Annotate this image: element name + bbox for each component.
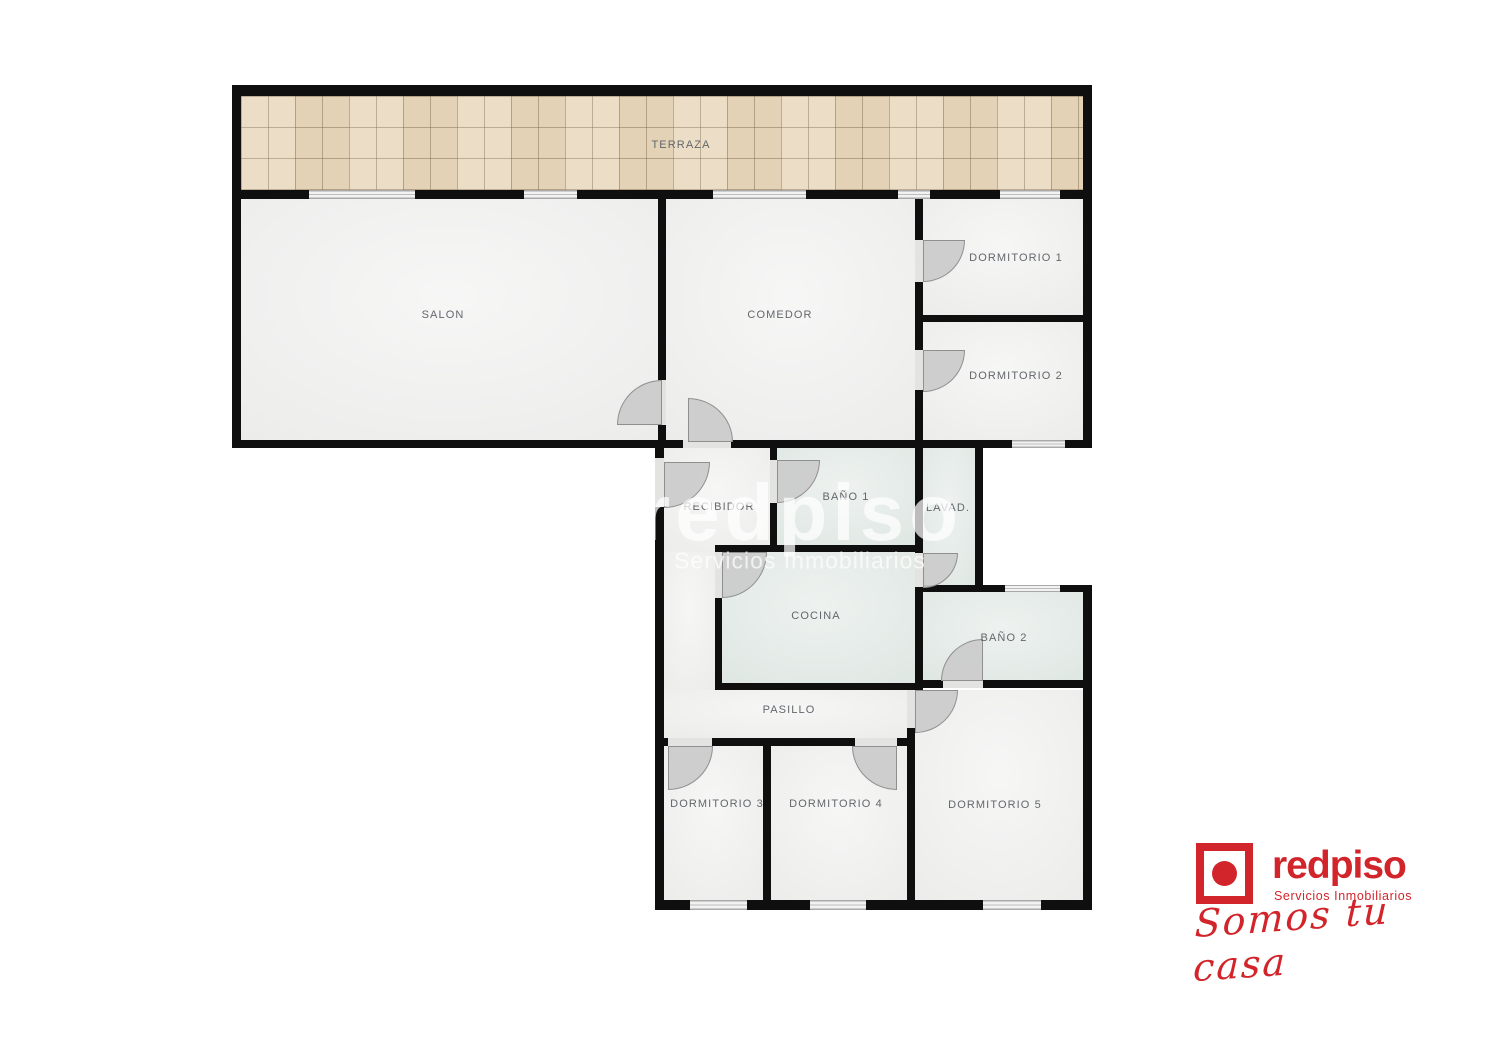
wall-segment — [731, 440, 1012, 448]
room-label-lavadero: LAVAD. — [926, 502, 970, 514]
wall-segment — [655, 507, 664, 910]
wall-segment — [763, 746, 771, 900]
room-corridor — [664, 552, 715, 690]
redpiso-logo-dot-icon — [1212, 861, 1237, 886]
wall-segment — [866, 900, 983, 910]
door-threshold — [770, 460, 777, 503]
wall-segment — [907, 728, 915, 900]
wall-segment — [577, 190, 713, 199]
door-threshold — [915, 553, 923, 587]
redpiso-logo-icon — [1196, 843, 1253, 904]
logo-brand-text: redpiso — [1272, 844, 1406, 888]
wall-segment — [1041, 900, 1092, 910]
wall-segment — [232, 440, 683, 448]
wall-segment — [715, 598, 722, 690]
window — [690, 900, 747, 910]
wall-segment — [907, 683, 915, 690]
wall-segment — [712, 738, 855, 746]
room-label-bano-2: BAÑO 2 — [981, 632, 1028, 644]
wall-outer-right-lower — [1083, 585, 1092, 910]
wall-segment — [747, 900, 810, 910]
logo-tagline: Somos tu casa — [1192, 885, 1440, 991]
room-label-dormitorio-1: DORMITORIO 1 — [969, 252, 1063, 264]
room-label-comedor: COMEDOR — [747, 309, 812, 321]
door-threshold — [715, 552, 722, 598]
floor-plan: TERRAZA SALON COMEDOR DORMITORIO 1 DORMI… — [0, 0, 1500, 1061]
window — [1000, 190, 1060, 199]
door-threshold — [943, 680, 983, 688]
door-threshold — [915, 350, 923, 390]
wall-outer-right-upper — [1083, 96, 1092, 448]
wall-segment — [655, 448, 664, 458]
wall-segment — [232, 190, 309, 199]
wall-segment — [1060, 585, 1083, 592]
window — [898, 190, 930, 199]
wall-segment — [915, 680, 943, 688]
room-label-cocina: COCINA — [791, 610, 840, 622]
wall-segment — [658, 425, 666, 440]
wall-segment — [655, 900, 690, 910]
wall-segment — [915, 587, 923, 690]
wall-segment — [806, 190, 898, 199]
door-threshold — [855, 738, 897, 746]
window — [983, 900, 1041, 910]
wall-segment — [1060, 190, 1092, 199]
wall-segment — [975, 448, 983, 592]
wall-segment — [915, 282, 923, 350]
window — [1012, 440, 1065, 448]
window — [713, 190, 806, 199]
wall-segment — [715, 683, 915, 690]
door-threshold — [668, 738, 712, 746]
wall-outer-left — [232, 96, 241, 448]
window — [1005, 585, 1060, 592]
door-threshold — [907, 690, 915, 728]
wall-segment — [655, 738, 668, 746]
room-label-pasillo: PASILLO — [763, 704, 816, 716]
room-label-dormitorio-4: DORMITORIO 4 — [789, 798, 883, 810]
wall-segment — [915, 448, 923, 553]
door-threshold — [915, 240, 923, 282]
room-label-terraza: TERRAZA — [651, 139, 710, 151]
window — [810, 900, 866, 910]
wall-segment — [658, 199, 666, 380]
room-label-recibidor: RECIBIDOR — [683, 501, 754, 513]
room-label-dormitorio-2: DORMITORIO 2 — [969, 370, 1063, 382]
wall-segment — [930, 190, 1000, 199]
wall-segment — [923, 315, 1083, 322]
room-label-salon: SALON — [422, 309, 465, 321]
wall-segment — [415, 190, 524, 199]
wall-segment — [897, 738, 907, 746]
room-label-dormitorio-3: DORMITORIO 3 — [670, 798, 764, 810]
wall-segment — [770, 448, 777, 460]
window — [309, 190, 415, 199]
window — [524, 190, 577, 199]
wall-segment — [715, 545, 915, 552]
door-threshold — [655, 458, 664, 507]
room-label-dormitorio-5: DORMITORIO 5 — [948, 799, 1042, 811]
wall-terraza-top — [232, 85, 1092, 96]
room-label-bano-1: BAÑO 1 — [823, 491, 870, 503]
wall-segment — [983, 680, 1083, 688]
redpiso-logo: redpiso Servicios Inmobiliarios Somos tu… — [1190, 836, 1440, 981]
wall-segment — [915, 199, 923, 240]
wall-segment — [1065, 440, 1092, 448]
